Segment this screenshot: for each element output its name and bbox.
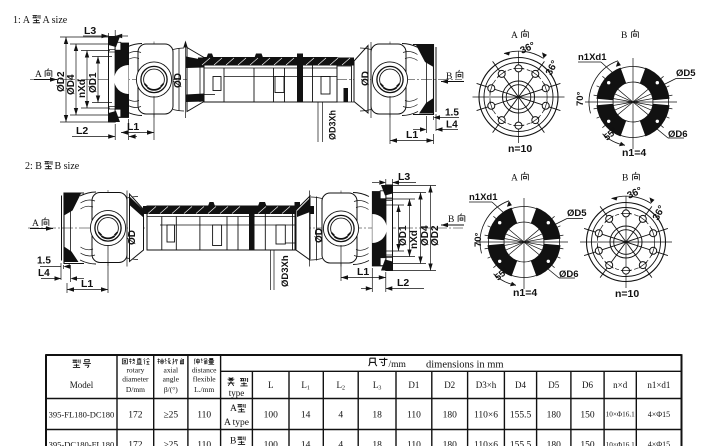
svg-text:B: B: [622, 174, 628, 184]
svg-text:14: 14: [301, 441, 311, 446]
svg-text:2: B: 2: B: [25, 161, 42, 172]
svg-text:rotary: rotary: [126, 366, 144, 375]
svg-text:D5: D5: [548, 380, 559, 390]
svg-text:70°: 70°: [473, 232, 484, 247]
svg-text:ØD6: ØD6: [668, 129, 688, 140]
svg-text:B size: B size: [55, 161, 80, 172]
svg-text:A size: A size: [43, 15, 68, 26]
svg-text:180: 180: [547, 411, 562, 421]
svg-text:β/(°): β/(°): [164, 385, 178, 394]
svg-text:ØD3Xh: ØD3Xh: [328, 110, 338, 140]
svg-text:180: 180: [547, 441, 562, 446]
svg-text:type: type: [229, 388, 245, 398]
svg-text:ØD1: ØD1: [88, 72, 99, 93]
svg-text:L1: L1: [127, 121, 139, 133]
svg-text:L1: L1: [81, 278, 93, 290]
svg-text:172: 172: [128, 411, 143, 421]
svg-text:172: 172: [128, 441, 143, 446]
svg-text:axial: axial: [164, 366, 179, 375]
svg-text:L: L: [268, 380, 274, 390]
svg-text:B: B: [448, 215, 454, 225]
svg-text:4: 4: [338, 411, 343, 421]
svg-text:ØD: ØD: [127, 230, 138, 245]
svg-text:395-DC180-FL180: 395-DC180-FL180: [49, 440, 115, 446]
svg-text:L./mm: L./mm: [194, 385, 214, 394]
svg-text:n1=4: n1=4: [513, 287, 537, 299]
svg-text:ØD6: ØD6: [559, 269, 579, 280]
svg-text:flexible: flexible: [193, 375, 217, 384]
svg-text:150: 150: [580, 411, 595, 421]
svg-text:diameter: diameter: [122, 375, 149, 384]
svg-text:155.5: 155.5: [510, 441, 532, 446]
svg-text:n1Xd1: n1Xd1: [469, 192, 498, 203]
svg-text:L4: L4: [446, 120, 458, 131]
svg-text:100: 100: [264, 441, 279, 446]
svg-text:ØD: ØD: [314, 228, 325, 243]
svg-text:18: 18: [372, 441, 382, 446]
svg-text:n1×d1: n1×d1: [647, 380, 670, 390]
svg-text:L2: L2: [76, 125, 88, 137]
svg-text:B: B: [230, 437, 236, 446]
svg-text:L3: L3: [84, 25, 96, 37]
svg-text:10×Φ16.1: 10×Φ16.1: [606, 441, 635, 446]
svg-text:1.5: 1.5: [445, 108, 459, 119]
svg-text:100: 100: [264, 411, 279, 421]
svg-text:14: 14: [301, 411, 311, 421]
svg-text:395-FL180-DC180: 395-FL180-DC180: [49, 410, 115, 420]
svg-text:A: A: [32, 219, 39, 229]
svg-text:4×Φ15: 4×Φ15: [648, 410, 670, 419]
svg-text:ØD3Xh: ØD3Xh: [280, 255, 291, 287]
svg-text:D/mm: D/mm: [126, 385, 145, 394]
svg-text:A type: A type: [224, 418, 249, 428]
svg-text:155.5: 155.5: [510, 411, 532, 421]
svg-text:ØD5: ØD5: [567, 208, 587, 219]
svg-text:110×6: 110×6: [474, 441, 498, 446]
svg-text:L4: L4: [38, 268, 50, 279]
svg-text:n1=4: n1=4: [622, 147, 646, 159]
svg-text:D3×h: D3×h: [476, 380, 497, 390]
svg-text:L1: L1: [406, 129, 418, 141]
svg-text:110: 110: [197, 441, 211, 446]
svg-text:L1: L1: [357, 266, 369, 278]
svg-text:18: 18: [372, 411, 382, 421]
svg-text:ØD1: ØD1: [398, 225, 409, 246]
svg-text:n=10: n=10: [615, 288, 639, 300]
svg-text:A: A: [511, 31, 518, 41]
svg-text:A: A: [511, 174, 518, 184]
svg-text:ØD: ØD: [361, 71, 372, 86]
svg-text:dimensions in mm: dimensions in mm: [426, 360, 504, 371]
svg-text:4: 4: [338, 441, 343, 446]
svg-text:Model: Model: [70, 380, 94, 390]
svg-text:180: 180: [443, 411, 458, 421]
svg-text:ØD4: ØD4: [66, 74, 77, 95]
svg-text:L3: L3: [398, 171, 410, 183]
svg-text:B: B: [621, 31, 627, 41]
svg-text:180: 180: [443, 441, 458, 446]
svg-text:D1: D1: [408, 380, 419, 390]
svg-text:distance: distance: [192, 366, 217, 375]
svg-text:A: A: [35, 70, 42, 80]
svg-text:≥25: ≥25: [163, 441, 178, 446]
svg-text:ØD2: ØD2: [430, 225, 441, 246]
svg-text:4×Φ15: 4×Φ15: [648, 440, 670, 446]
svg-text:D4: D4: [515, 380, 526, 390]
svg-text:/mm: /mm: [389, 360, 407, 370]
svg-text:110: 110: [407, 411, 421, 421]
svg-text:≥25: ≥25: [163, 411, 178, 421]
svg-text:150: 150: [580, 441, 595, 446]
svg-text:110: 110: [407, 441, 421, 446]
svg-text:A: A: [230, 404, 237, 414]
svg-text:angle: angle: [163, 375, 180, 384]
svg-text:10×Φ16.1: 10×Φ16.1: [606, 411, 635, 419]
svg-text:110: 110: [197, 411, 211, 421]
svg-text:n=10: n=10: [508, 143, 532, 155]
svg-text:nXd: nXd: [77, 79, 88, 98]
svg-text:70°: 70°: [575, 91, 586, 106]
svg-text:110×6: 110×6: [474, 411, 498, 421]
svg-text:n1Xd1: n1Xd1: [578, 52, 607, 63]
svg-text:ØD5: ØD5: [676, 68, 696, 79]
svg-text:L2: L2: [397, 277, 409, 289]
svg-text:n×d: n×d: [613, 380, 628, 390]
svg-text:ØD: ØD: [173, 73, 184, 88]
svg-text:D6: D6: [582, 380, 593, 390]
svg-text:1.5: 1.5: [37, 256, 51, 267]
svg-text:1: A: 1: A: [13, 15, 31, 26]
svg-text:D2: D2: [444, 380, 455, 390]
svg-text:nXd: nXd: [409, 230, 420, 249]
